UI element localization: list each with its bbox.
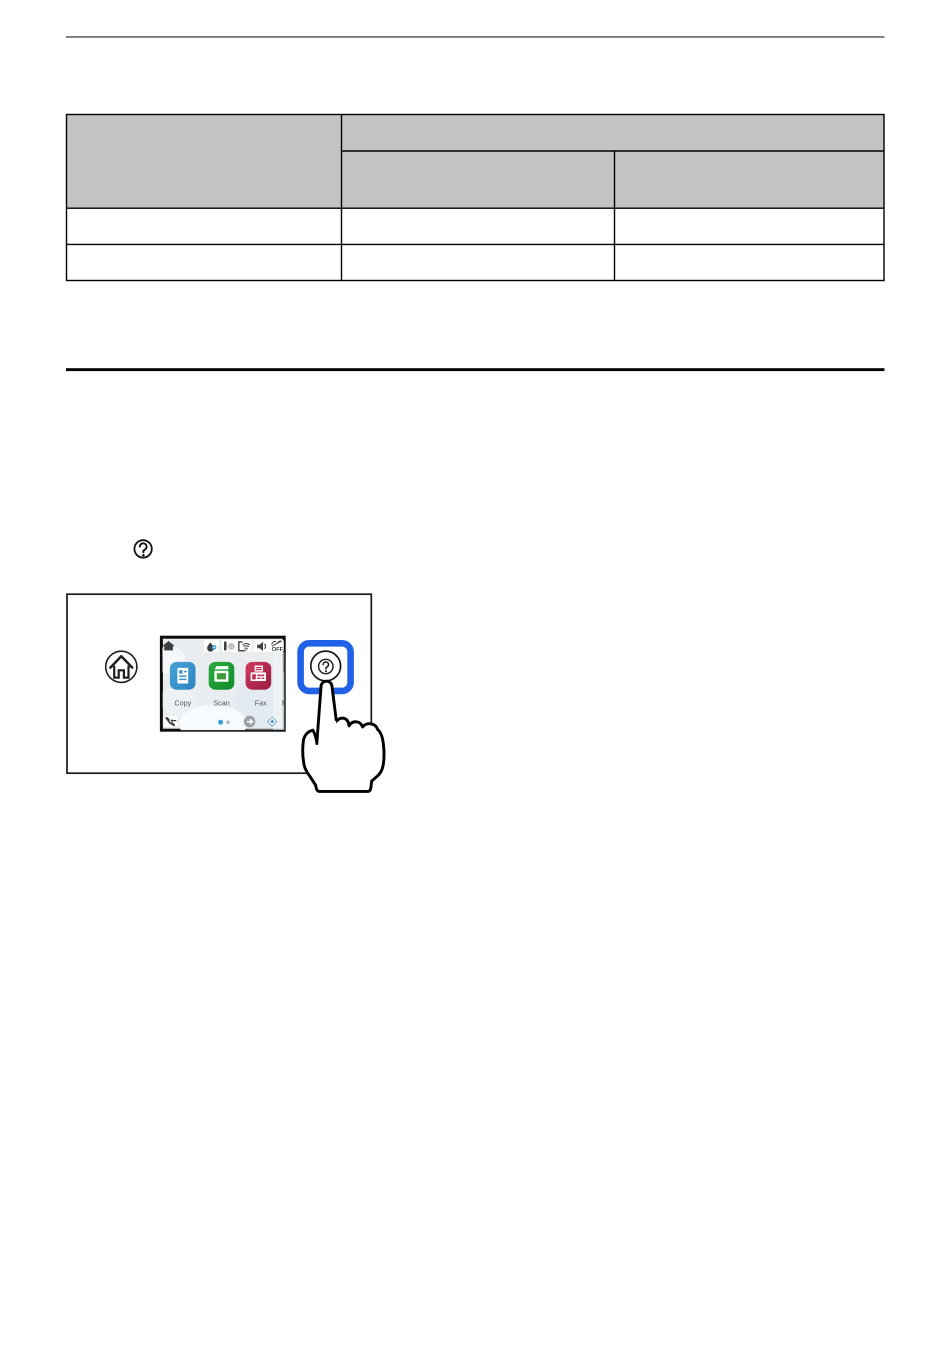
svg-text:Fax: Fax: [255, 699, 267, 708]
svg-text:Copy: Copy: [174, 699, 191, 708]
svg-text:OFF: OFF: [272, 647, 284, 653]
svg-text:Scan: Scan: [213, 699, 229, 708]
